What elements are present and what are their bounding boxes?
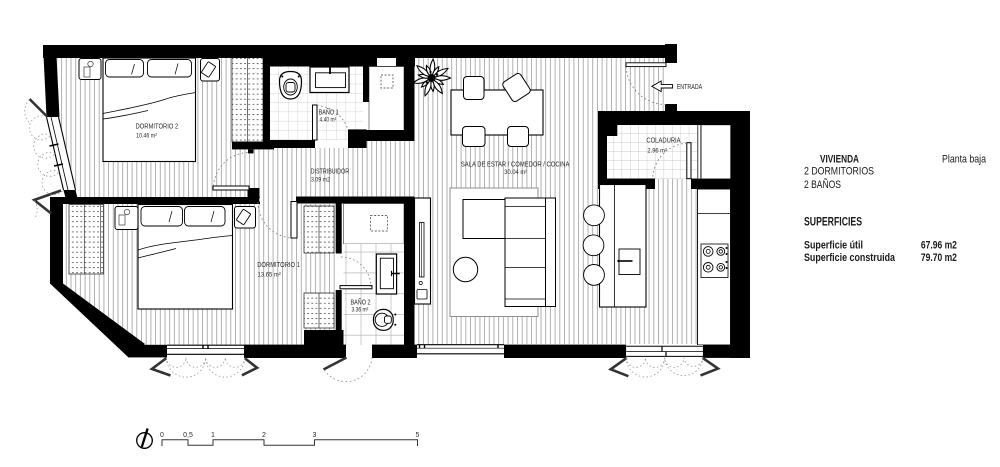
svg-text:Planta baja: Planta baja xyxy=(942,154,987,166)
svg-text:3: 3 xyxy=(313,432,317,439)
svg-text:0: 0 xyxy=(160,432,164,439)
svg-text:SALA DE ESTAR / COMEDOR / COCI: SALA DE ESTAR / COMEDOR / COCINA xyxy=(461,162,570,169)
svg-text:0,5: 0,5 xyxy=(183,432,193,439)
svg-text:ENTRADA: ENTRADA xyxy=(677,82,703,91)
svg-text:SUPERFICIES: SUPERFICIES xyxy=(804,216,862,228)
svg-text:2: 2 xyxy=(262,432,266,439)
svg-text:BAÑO 2: BAÑO 2 xyxy=(351,297,371,306)
svg-text:BAÑO 1: BAÑO 1 xyxy=(319,108,339,117)
svg-text:DORMITORIO 1: DORMITORIO 1 xyxy=(257,262,300,269)
svg-text:4.40 m²: 4.40 m² xyxy=(320,117,337,124)
svg-text:3.36 m²: 3.36 m² xyxy=(352,306,369,313)
svg-text:2.96 m²: 2.96 m² xyxy=(647,148,667,155)
svg-text:3.09 m2: 3.09 m2 xyxy=(311,176,330,183)
svg-text:Superficie construida: Superficie construida xyxy=(804,252,896,264)
svg-text:13.65 m²: 13.65 m² xyxy=(258,271,282,278)
svg-text:30.04 m²: 30.04 m² xyxy=(504,169,527,176)
svg-text:DISTRIBUIDOR: DISTRIBUIDOR xyxy=(311,169,350,176)
svg-text:67.96 m2: 67.96 m2 xyxy=(921,240,957,252)
svg-text:10.46 m²: 10.46 m² xyxy=(136,133,158,140)
svg-text:2 DORMITORIOS: 2 DORMITORIOS xyxy=(804,166,874,178)
svg-text:DORMITORIO 2: DORMITORIO 2 xyxy=(136,123,179,130)
svg-text:79.70 m2: 79.70 m2 xyxy=(921,252,957,264)
svg-text:COLADURIA: COLADURIA xyxy=(646,138,680,145)
svg-text:5: 5 xyxy=(416,432,420,439)
svg-text:1: 1 xyxy=(211,432,215,439)
svg-text:Superficie útil: Superficie útil xyxy=(804,240,863,252)
svg-text:2 BAÑOS: 2 BAÑOS xyxy=(804,178,841,191)
svg-text:VIVIENDA: VIVIENDA xyxy=(820,154,859,166)
